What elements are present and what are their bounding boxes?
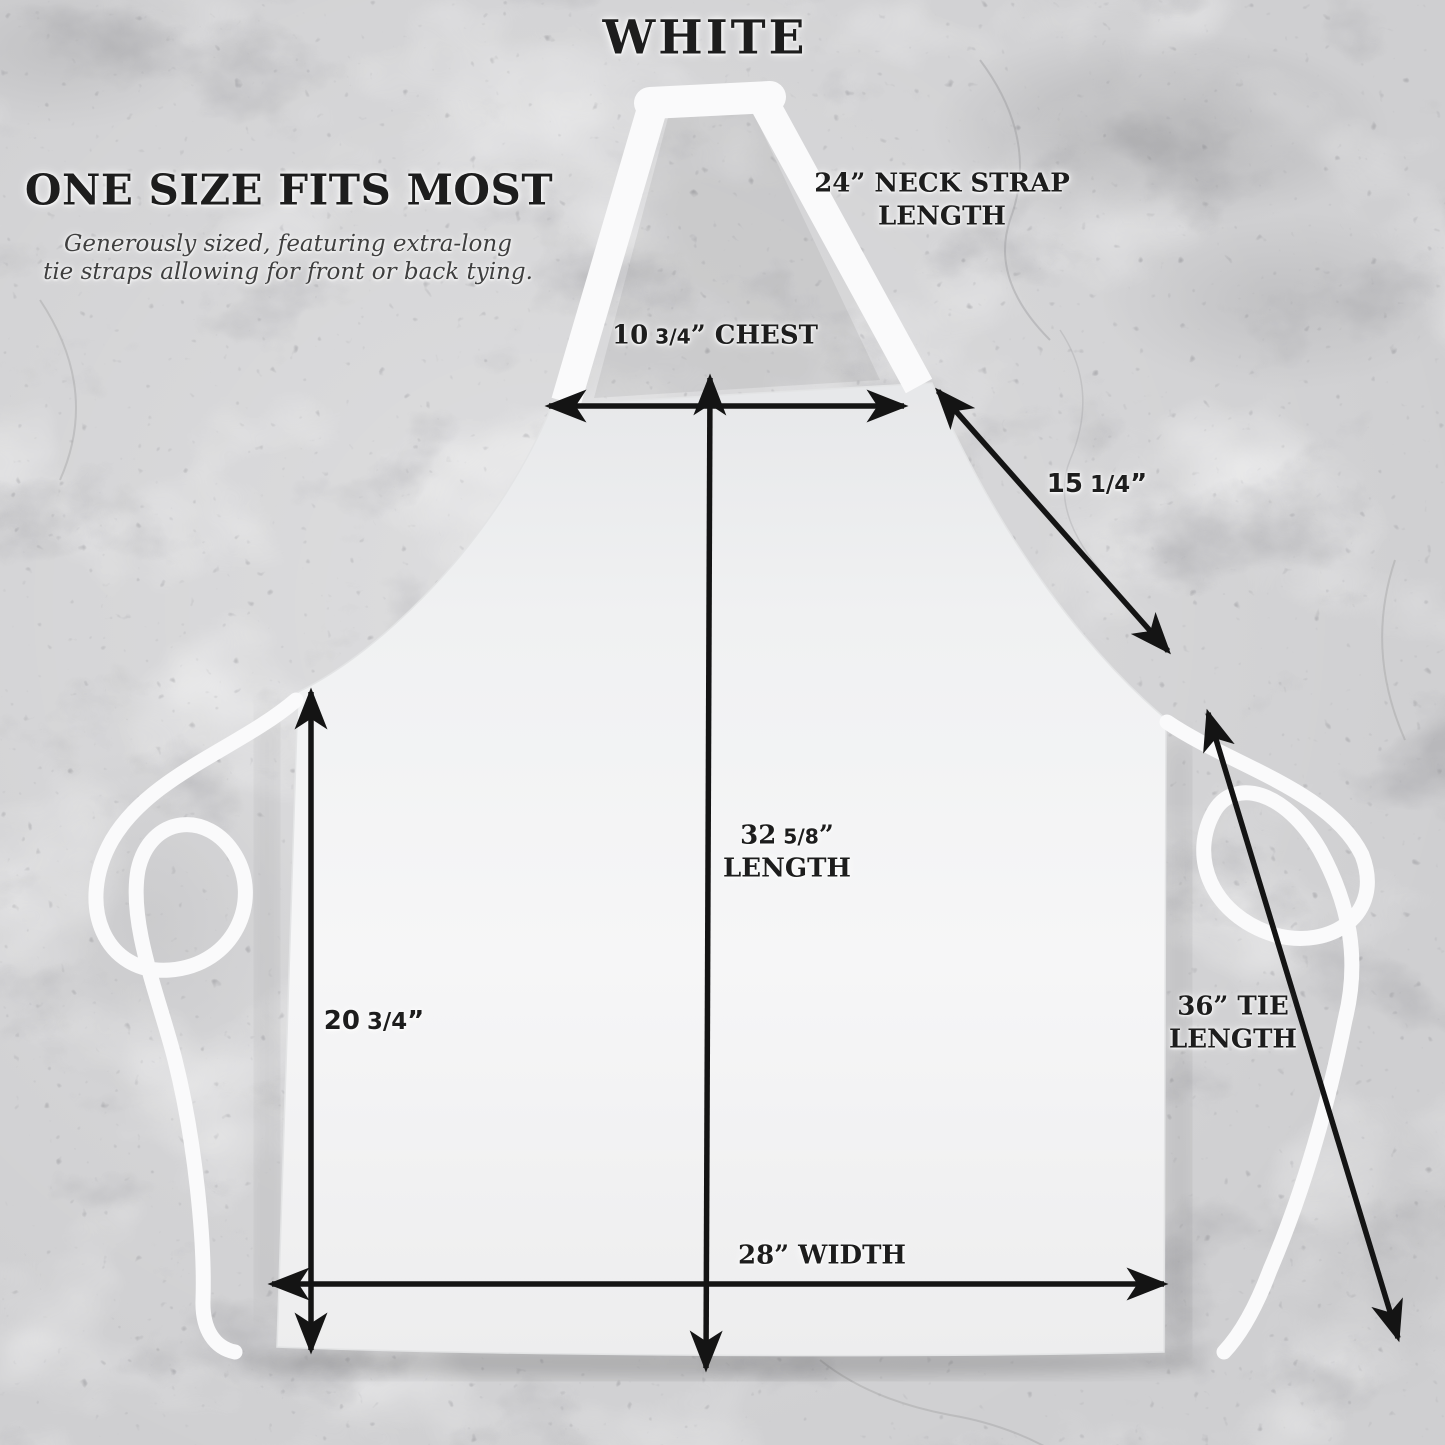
neck-strap-label-line-2: LENGTH — [814, 201, 1070, 234]
tie-label-line-2: LENGTH — [1169, 1024, 1297, 1057]
bib-diagonal-measurement-label: 151/4” — [1047, 469, 1147, 499]
length-label-line-1: 325/8” — [723, 820, 851, 853]
tie-measurement-label: 36” TIE LENGTH — [1169, 991, 1297, 1058]
length-label-line-2: LENGTH — [723, 853, 851, 886]
one-size-subtitle: Generously sized, featuring extra-long t… — [43, 230, 533, 286]
marble-dark-patch — [1100, 210, 1445, 390]
side-measurement-label: 203/4” — [324, 1006, 424, 1036]
subtitle-line-1: Generously sized, featuring extra-long — [43, 230, 533, 258]
chest-number: 10 — [612, 320, 648, 350]
chest-fraction: 3/4 — [655, 324, 691, 348]
side-fraction: 3/4 — [367, 1009, 407, 1035]
neck-strap-measurement-label: 24” NECK STRAP LENGTH — [814, 168, 1070, 235]
bib-diagonal-number: 15 — [1047, 469, 1083, 499]
length-fraction: 5/8 — [783, 825, 819, 849]
subtitle-line-2: tie straps allowing for front or back ty… — [43, 258, 533, 286]
chest-suffix: ” CHEST — [691, 320, 818, 350]
side-number: 20 — [324, 1006, 360, 1036]
length-number: 32 — [740, 821, 776, 851]
neck-strap-label-line-1: 24” NECK STRAP — [814, 168, 1070, 201]
apron-illustration — [0, 0, 1445, 1445]
neck-strap-top-band — [650, 97, 770, 103]
chest-measurement-label: 103/4” CHEST — [612, 319, 818, 352]
color-title: WHITE — [603, 11, 808, 66]
tie-label-line-1: 36” TIE — [1169, 991, 1297, 1024]
side-suffix: ” — [407, 1006, 424, 1036]
apron-size-diagram: WHITE ONE SIZE FITS MOST Generously size… — [0, 0, 1445, 1445]
one-size-heading: ONE SIZE FITS MOST — [25, 166, 553, 215]
length-measurement-label: 325/8” LENGTH — [723, 820, 851, 887]
bib-diagonal-suffix: ” — [1130, 469, 1147, 499]
bib-diagonal-fraction: 1/4 — [1090, 472, 1130, 498]
width-measurement-label: 28” WIDTH — [738, 1239, 906, 1272]
length-suffix: ” — [819, 821, 834, 851]
